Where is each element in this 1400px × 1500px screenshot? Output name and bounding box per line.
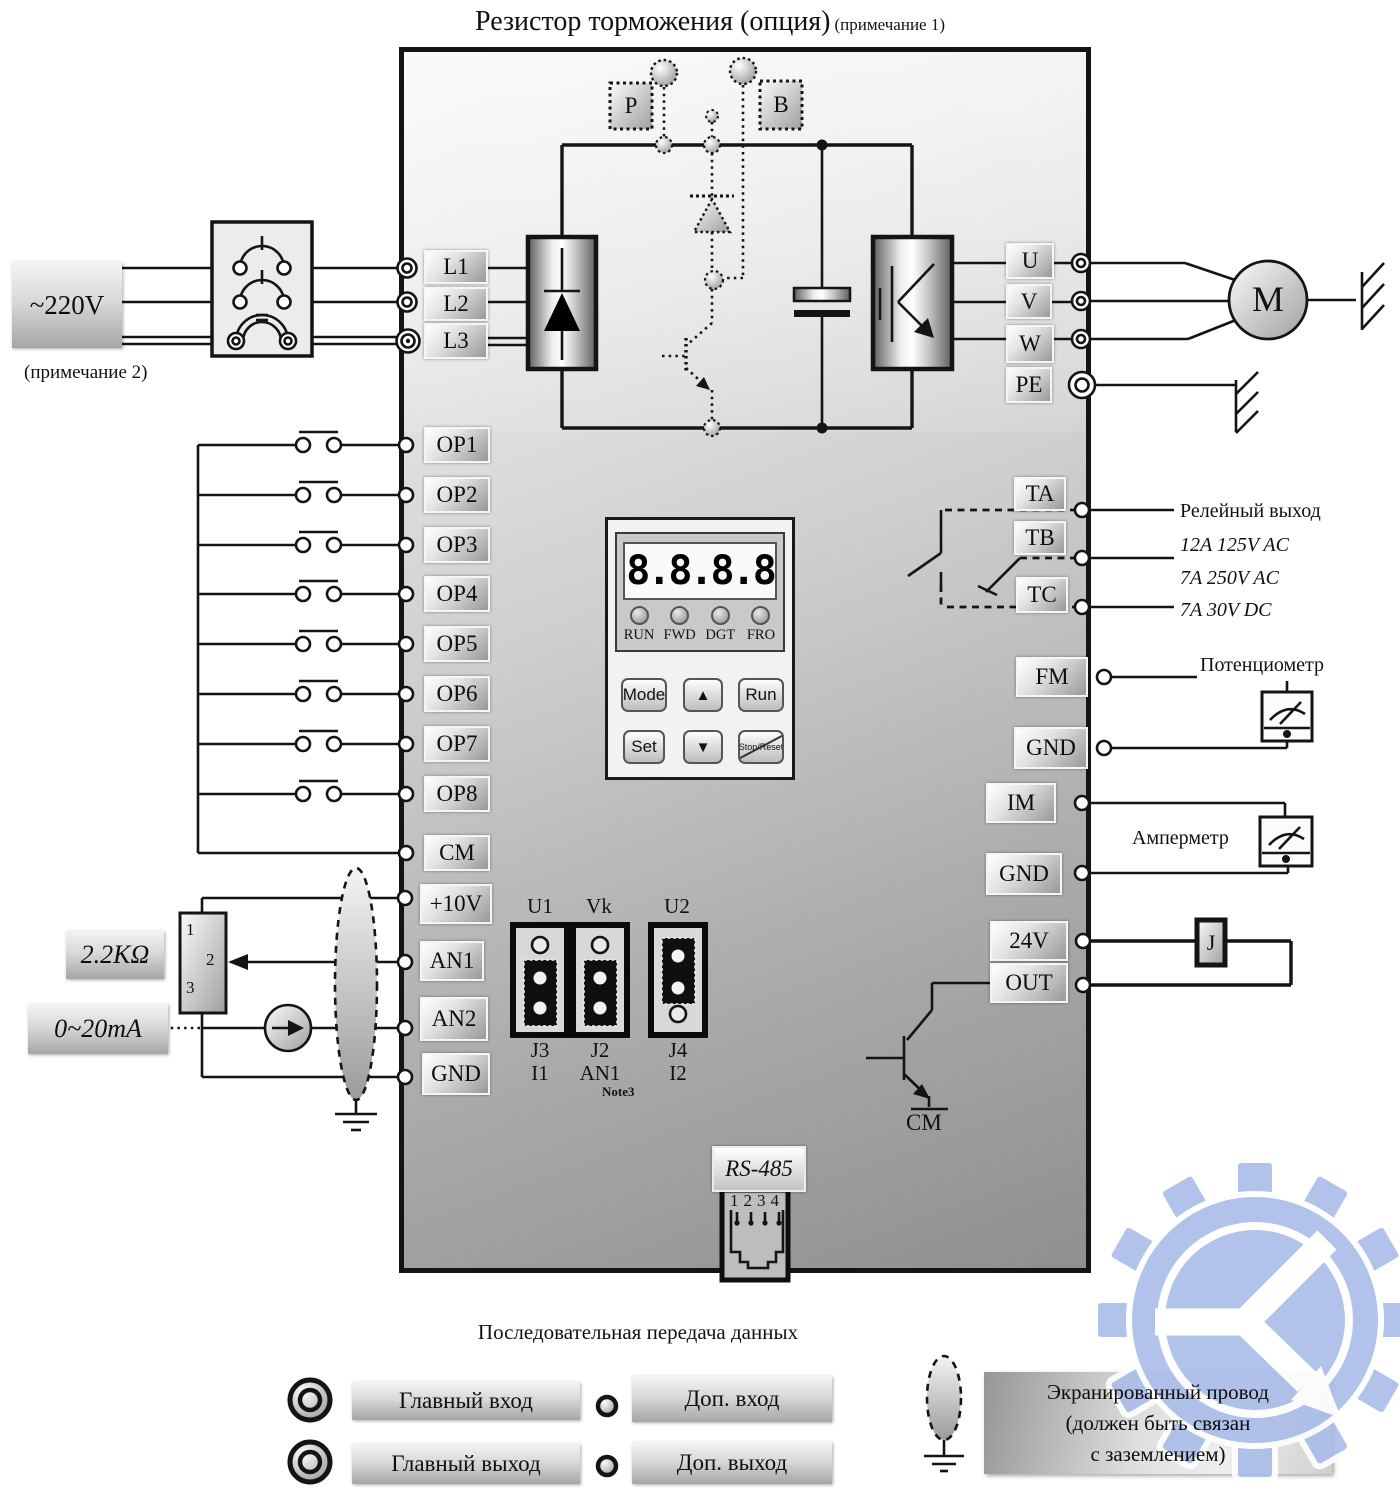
- fro-led: [751, 606, 770, 625]
- jumper-u2-label: U2: [656, 894, 698, 919]
- terminal-op4: OP4: [424, 576, 490, 612]
- run-led: [630, 606, 649, 625]
- jumper-i1-label: I1: [524, 1061, 556, 1086]
- resistor-value: 2.2KΩ: [81, 940, 150, 970]
- op1-label: OP1: [437, 432, 478, 458]
- pot-pin-2: 2: [206, 950, 215, 970]
- terminal-an2: AN2: [420, 997, 488, 1041]
- p10v-label: +10V: [430, 891, 483, 917]
- terminal-an1: AN1: [420, 941, 484, 981]
- note2-text: (примечание 2): [24, 362, 147, 384]
- brake-p-label: P: [625, 93, 638, 119]
- legend-main-output-icon: [290, 1442, 330, 1482]
- dc-capacitor: [794, 140, 850, 434]
- dgt-led: [711, 606, 730, 625]
- dc-bus: [562, 145, 912, 428]
- gnd-an-label: GND: [431, 1061, 481, 1087]
- terminal-gnd-im: GND: [986, 853, 1062, 895]
- rs485-label-box: RS-485: [712, 1146, 806, 1192]
- terminal-op1: OP1: [424, 427, 490, 463]
- terminal-out: OUT: [990, 963, 1068, 1003]
- op-switch[interactable]: [198, 532, 398, 552]
- terminal-op6: OP6: [424, 676, 490, 712]
- op-switch[interactable]: [198, 731, 398, 751]
- dgt-led-label: DGT: [705, 627, 735, 644]
- terminal-tb: TB: [1014, 521, 1066, 555]
- jumper-vk-label: Vk: [578, 894, 620, 919]
- pot-pin-1: 1: [186, 920, 195, 940]
- legend-aux-input-label: Доп. вход: [684, 1386, 779, 1412]
- op5-label: OP5: [437, 631, 478, 657]
- rs485-label: RS-485: [725, 1156, 793, 1182]
- rectifier-symbol: [528, 237, 596, 369]
- title-note: (примечание 1): [835, 15, 945, 34]
- resistor-value-box: 2.2KΩ: [66, 931, 164, 979]
- note3-text: Note3: [602, 1084, 635, 1100]
- terminal-w-label: W: [1019, 331, 1041, 357]
- motor-letter: M: [1248, 276, 1288, 322]
- supply-voltage-box: ~220V: [12, 262, 122, 348]
- out-label: OUT: [1005, 970, 1052, 996]
- jumper-i2-label: I2: [662, 1061, 694, 1086]
- terminal-l2-label: L2: [443, 291, 469, 317]
- legend-aux-output: Доп. выход: [632, 1442, 832, 1484]
- digital-input-wires: [198, 432, 413, 860]
- current-range: 0~20mA: [54, 1014, 142, 1044]
- jumper-j3-label: J3: [524, 1038, 556, 1063]
- terminal-l3: L3: [424, 323, 488, 359]
- mode-button[interactable]: Mode: [621, 678, 667, 712]
- legend-aux-output-icon: [598, 1457, 616, 1475]
- legend-aux-output-label: Доп. выход: [677, 1450, 787, 1476]
- serial-comm-caption: Последовательная передача данных: [468, 1320, 808, 1345]
- keypad-led-row: RUN FWD DGT FRO: [619, 606, 781, 644]
- terminal-u: U: [1006, 243, 1054, 279]
- transistor-cm-label: CM: [906, 1110, 942, 1136]
- op3-label: OP3: [437, 532, 478, 558]
- jumper-block-j3[interactable]: [513, 925, 567, 1035]
- pe-ground-icon: [1236, 372, 1258, 433]
- terminal-fm: FM: [1016, 657, 1088, 697]
- legend-main-input-label: Главный вход: [399, 1388, 533, 1414]
- op6-label: OP6: [437, 681, 478, 707]
- jumper-an1-label: AN1: [574, 1061, 626, 1086]
- terminal-op5: OP5: [424, 626, 490, 662]
- jumper-j2-label: J2: [584, 1038, 616, 1063]
- legend-main-output: Главный выход: [352, 1444, 580, 1484]
- supply-voltage: ~220V: [30, 290, 105, 321]
- potentiometer-caption: Потенциометр: [1200, 654, 1324, 677]
- terminal-op3: OP3: [424, 527, 490, 563]
- op-switch[interactable]: [198, 482, 398, 502]
- do-wires: [1076, 920, 1291, 992]
- terminal-im: IM: [986, 783, 1056, 823]
- wiring-diagram: Резистор торможения (опция) (примечание …: [0, 0, 1400, 1500]
- op4-label: OP4: [437, 581, 478, 607]
- shield-note-line1: Экранированный провод: [1047, 1377, 1269, 1408]
- terminal-u-label: U: [1022, 248, 1039, 274]
- relay-rating-3: 7A 30V DC: [1180, 599, 1272, 622]
- jumper-j4-label: J4: [662, 1038, 694, 1063]
- relay-coil-letter: J: [1197, 920, 1225, 965]
- relay-rating-1: 12A 125V AC: [1180, 534, 1289, 557]
- legend-main-input: Главный вход: [352, 1382, 580, 1420]
- op-switch[interactable]: [198, 681, 398, 701]
- terminal-l2: L2: [424, 287, 488, 321]
- legend-main-input-icon: [290, 1380, 330, 1420]
- stop-reset-button[interactable]: Stop/Reset: [738, 730, 784, 764]
- open-collector-transistor: [866, 983, 990, 1109]
- terminal-v-label: V: [1021, 289, 1038, 315]
- fro-led-label: FRO: [747, 627, 775, 644]
- fm-label: FM: [1035, 664, 1068, 690]
- op7-label: OP7: [437, 731, 478, 757]
- terminal-v: V: [1006, 284, 1052, 319]
- brake-terminal-p: P: [612, 85, 650, 127]
- ta-label: TA: [1026, 481, 1055, 507]
- tc-label: TC: [1027, 582, 1056, 608]
- gnd-fm-label: GND: [1026, 735, 1076, 761]
- op-switch[interactable]: [198, 781, 398, 801]
- terminal-l1: L1: [424, 250, 488, 284]
- op-switch[interactable]: [198, 581, 398, 601]
- shield-note-line3: с заземлением): [1091, 1439, 1226, 1470]
- inverter-igbt-symbol: [873, 237, 952, 369]
- tb-label: TB: [1025, 525, 1054, 551]
- relay-rating-2: 7A 250V AC: [1180, 567, 1279, 590]
- legend-aux-input: Доп. вход: [632, 1376, 832, 1422]
- brake-terminal-b: B: [762, 84, 800, 126]
- terminal-tc: TC: [1016, 577, 1068, 613]
- op-switch[interactable]: [198, 631, 398, 651]
- terminal-gnd-an: GND: [422, 1053, 490, 1095]
- terminal-op8: OP8: [424, 776, 490, 812]
- input-terminal-rings: [397, 259, 420, 353]
- terminal-l3-label: L3: [443, 328, 469, 354]
- legend-aux-input-icon: [598, 1397, 616, 1415]
- op2-label: OP2: [437, 482, 478, 508]
- contactor-symbol: [212, 222, 312, 356]
- jumper-u1-label: U1: [520, 894, 560, 919]
- terminal-gnd-fm: GND: [1014, 727, 1088, 769]
- ammeter-meter-icon: [1260, 817, 1312, 866]
- title-main: Резистор торможения (опция): [475, 6, 831, 37]
- current-range-box: 0~20mA: [28, 1004, 168, 1054]
- legend-shield-icon: [924, 1356, 964, 1471]
- ammeter-caption: Амперметр: [1132, 827, 1229, 850]
- run-button[interactable]: Run: [738, 678, 784, 712]
- an1-label: AN1: [430, 948, 475, 974]
- terminal-op7: OP7: [424, 726, 490, 762]
- shield-note-text: Экранированный провод (должен быть связа…: [984, 1372, 1332, 1474]
- page-title: Резистор торможения (опция) (примечание …: [360, 6, 1060, 38]
- fm-pot-wires: [1097, 670, 1287, 755]
- an2-label: AN2: [432, 1006, 477, 1032]
- terminal-pe-label: PE: [1016, 372, 1043, 398]
- op8-label: OP8: [437, 781, 478, 807]
- down-arrow-button[interactable]: ▼: [683, 730, 723, 764]
- terminal-10v: +10V: [420, 884, 492, 924]
- set-button[interactable]: Set: [623, 730, 665, 764]
- shield-note-line2: (должен быть связан: [1066, 1408, 1251, 1439]
- terminal-ta: TA: [1014, 477, 1066, 511]
- gnd-im-label: GND: [999, 861, 1049, 887]
- v24-label: 24V: [1009, 928, 1049, 954]
- relay-output-title: Релейный выход: [1180, 500, 1321, 523]
- seven-segment-display: 8.8.8.8: [623, 542, 777, 600]
- jumper-block-j2[interactable]: [573, 925, 627, 1035]
- terminal-l1-label: L1: [443, 254, 469, 280]
- terminal-cm: CM: [424, 835, 490, 871]
- fwd-led: [670, 606, 689, 625]
- keypad-display-bezel: 8.8.8.8 RUN FWD DGT FRO: [615, 532, 785, 652]
- terminal-pe: PE: [1006, 367, 1052, 403]
- im-label: IM: [1007, 790, 1035, 816]
- op-switch[interactable]: [198, 432, 398, 452]
- terminal-op2: OP2: [424, 477, 490, 513]
- fwd-led-label: FWD: [664, 627, 696, 644]
- up-arrow-button[interactable]: ▲: [683, 678, 723, 712]
- motor-ground-icon: [1362, 263, 1384, 330]
- potentiometer-meter-icon: [1262, 692, 1312, 741]
- shield-ellipse-large: [335, 868, 377, 1130]
- pot-pin-3: 3: [186, 978, 195, 998]
- keypad-panel: 8.8.8.8 RUN FWD DGT FRO Mode ▲ Run Set ▼…: [605, 517, 795, 780]
- rs485-pin-numbers: 1234: [730, 1191, 784, 1211]
- terminal-24v: 24V: [990, 921, 1068, 961]
- brake-b-label: B: [773, 92, 788, 118]
- jumper-block-j4[interactable]: [651, 925, 705, 1035]
- run-led-label: RUN: [624, 627, 655, 644]
- legend-main-output-label: Главный выход: [391, 1451, 540, 1477]
- terminal-w: W: [1006, 325, 1054, 363]
- cm-label: CM: [439, 840, 475, 866]
